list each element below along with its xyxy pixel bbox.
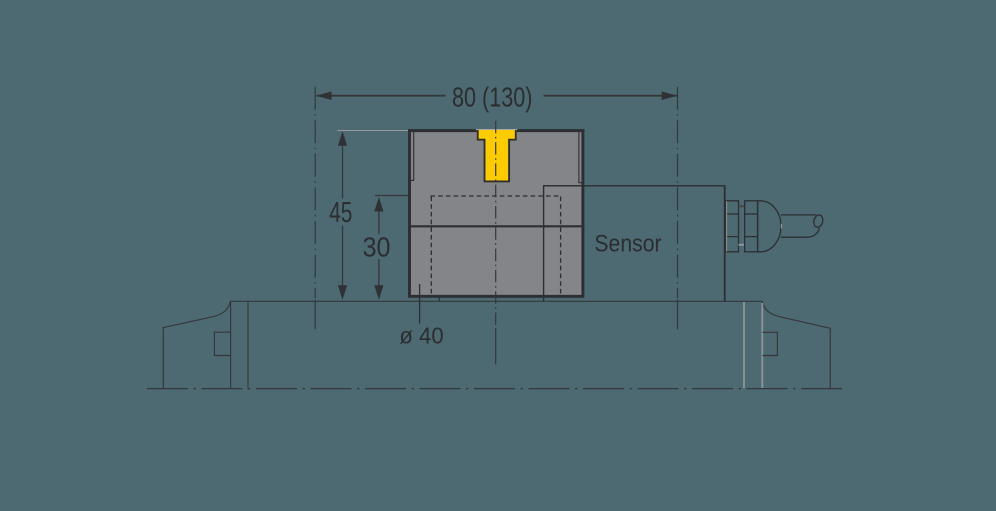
svg-text:30: 30 — [363, 231, 391, 262]
svg-text:80 (130): 80 (130) — [452, 81, 533, 112]
svg-text:ø 40: ø 40 — [399, 322, 443, 348]
svg-text:Sensor: Sensor — [594, 230, 661, 257]
svg-text:45: 45 — [329, 197, 352, 229]
